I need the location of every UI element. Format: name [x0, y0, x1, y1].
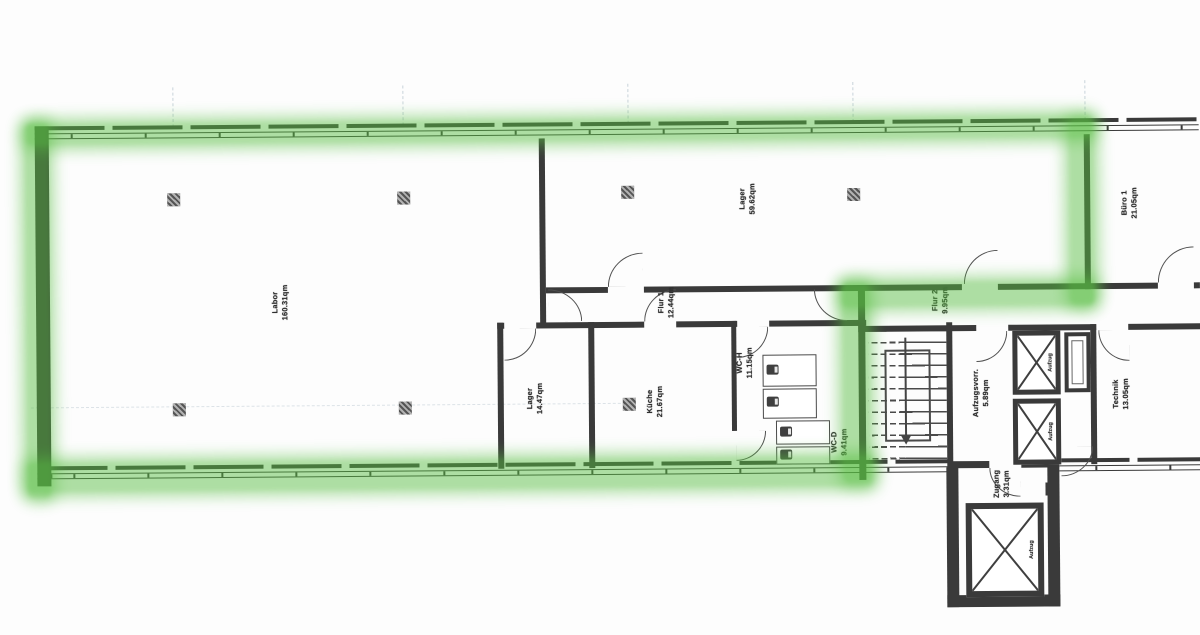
door-arc-lager-klein — [504, 329, 536, 361]
room-area: 160.31qm — [280, 285, 290, 321]
room-label-flur1: Flur 1 12.44qm — [656, 287, 676, 319]
room-name: Labor — [270, 285, 280, 321]
wall-segment — [948, 461, 989, 468]
room-area: 13.05qm — [1121, 378, 1131, 409]
room-area: 3.31qm — [1001, 470, 1011, 498]
wall-segment — [676, 321, 737, 327]
highlight-bottom — [27, 456, 873, 493]
room-label-kueche: Küche 21.67qm — [645, 386, 665, 418]
room-name: Lager — [525, 383, 535, 414]
room-name: Flur 1 — [656, 287, 666, 318]
door-arc-labor-flur1 — [548, 289, 582, 321]
room-area: 5.89qm — [981, 369, 991, 417]
room-area: 21.05qm — [1129, 187, 1139, 218]
room-label-technik: Technik 13.05qm — [1111, 378, 1131, 410]
column — [173, 403, 186, 416]
column — [621, 186, 634, 199]
column — [167, 193, 180, 206]
room-area: 21.67qm — [655, 386, 665, 417]
highlight-top — [27, 115, 1093, 145]
door-arc-flur2-lager — [964, 250, 998, 284]
room-name: Büro 1 — [1119, 187, 1129, 218]
toilet-icon — [780, 426, 792, 436]
room-area: 59.62qm — [747, 183, 757, 214]
room-label-wc-h: WC-H 11.15qm — [735, 347, 755, 378]
wall-stair-east — [946, 322, 953, 479]
toilet-icon — [767, 365, 779, 375]
room-label-buero1: Büro 1 21.05qm — [1119, 187, 1139, 219]
stair-railing — [884, 349, 931, 441]
floor-plan: Labor 160.31qm Lager 59.62qm Büro 1 21.0… — [0, 0, 1200, 635]
room-area: 11.15qm — [744, 347, 754, 378]
shaft-duct — [1064, 332, 1090, 392]
wall-labor-lager — [539, 138, 546, 324]
wall-segment — [858, 325, 976, 332]
elevator-label: Aufzug — [1048, 422, 1054, 441]
highlight-stair-west — [842, 284, 871, 482]
wall-lager-kueche — [588, 322, 595, 468]
wall-segment — [497, 323, 504, 469]
room-label-aufzugsvorraum: Aufzugsvorr. 5.89qm — [971, 369, 991, 417]
room-name: Aufzugsvorr. — [971, 369, 981, 417]
room-name: Küche — [645, 386, 655, 417]
highlight-lager-east — [1069, 120, 1095, 304]
column — [397, 191, 410, 204]
room-name: WC-H — [735, 347, 745, 378]
elevator-label: Aufzug — [1047, 353, 1053, 372]
toilet-icon — [767, 397, 779, 407]
column — [623, 398, 636, 411]
grid-line — [1084, 80, 1085, 120]
column — [399, 401, 412, 414]
elevator-label: Aufzug — [1029, 540, 1035, 559]
room-name: Technik — [1111, 378, 1121, 409]
room-label-labor: Labor 160.31qm — [270, 285, 290, 321]
section-marker — [1045, 482, 1053, 495]
floor-plan-drawing: Labor 160.31qm Lager 59.62qm Büro 1 21.0… — [0, 0, 1200, 635]
door-arc-technik — [1098, 330, 1129, 361]
highlight-left — [25, 123, 52, 497]
door-arc-buero1 — [1158, 246, 1194, 282]
room-area: 12.44qm — [666, 287, 676, 318]
section-marker — [948, 483, 956, 496]
room-label-zugang: Zugang 3.31qm — [992, 470, 1012, 498]
wall-technik-west — [1090, 324, 1097, 464]
wall-segment — [1194, 282, 1200, 288]
room-name: WC-D — [829, 429, 839, 456]
highlight-flur2-north — [842, 280, 1094, 307]
room-area: 14.47qm — [535, 383, 545, 414]
room-label-lager-klein: Lager 14.47qm — [525, 383, 545, 415]
door-arc-aufzugsvorraum — [976, 331, 1007, 362]
room-name: Lager — [737, 183, 747, 214]
column — [847, 188, 860, 201]
door-arc-lager — [608, 253, 643, 287]
stair-arrow-head — [901, 436, 911, 445]
shaft-duct-inner — [1071, 340, 1083, 384]
room-name: Zugang — [992, 470, 1002, 498]
wall-segment — [1128, 323, 1200, 330]
room-label-lager-gross: Lager 59.62qm — [737, 183, 757, 215]
